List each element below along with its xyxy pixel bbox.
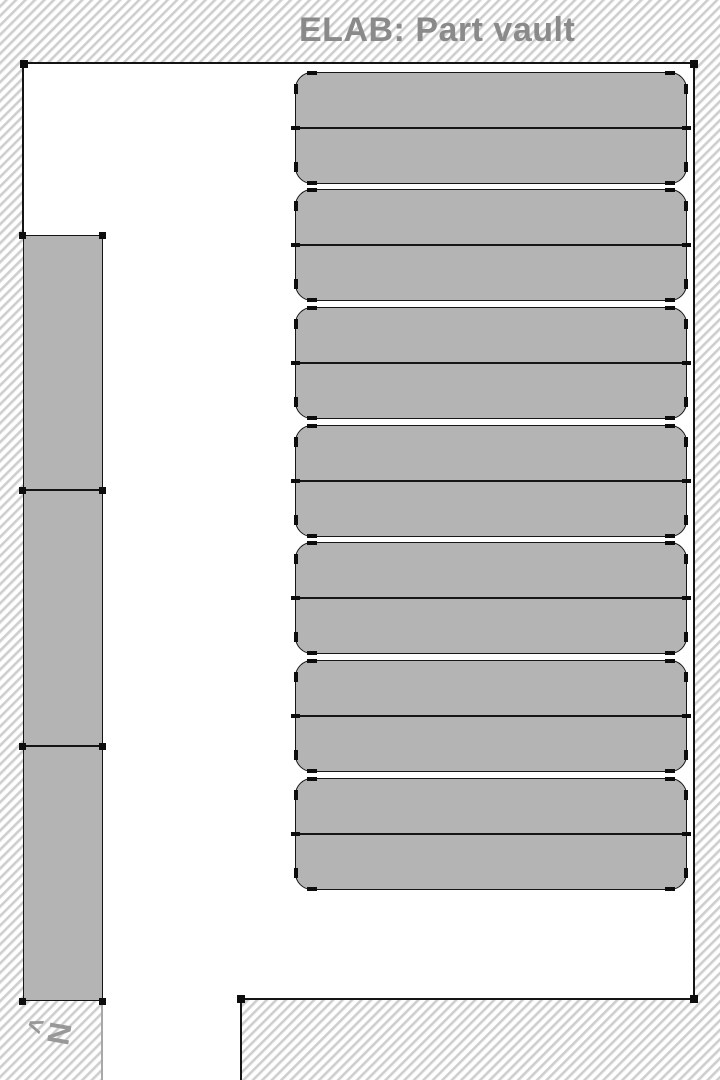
- vertex-tick: [307, 541, 317, 545]
- vertex-tick: [684, 319, 688, 329]
- wall-corner-marker: [690, 60, 698, 68]
- rack-corner-marker: [99, 232, 106, 239]
- vertex-tick: [684, 437, 688, 447]
- storage-rack-block: [23, 235, 103, 1001]
- vertex-tick: [307, 424, 317, 428]
- vertex-tick: [665, 181, 675, 185]
- vertex-tick: [682, 596, 691, 600]
- vertex-tick: [665, 651, 675, 655]
- vertex-tick: [294, 201, 298, 211]
- vertex-tick: [294, 279, 298, 289]
- vertex-tick: [665, 188, 675, 192]
- rack-corner-marker: [19, 743, 26, 750]
- vertex-tick: [307, 659, 317, 663]
- vertex-tick: [684, 868, 688, 878]
- wall-corridor-right: [240, 998, 242, 1080]
- vertex-tick: [682, 832, 691, 836]
- vertex-tick: [682, 126, 691, 130]
- vertex-tick: [307, 887, 317, 891]
- vertex-tick: [291, 361, 300, 365]
- vertex-tick: [294, 554, 298, 564]
- vertex-tick: [307, 181, 317, 185]
- vertex-tick: [682, 714, 691, 718]
- shelf-unit: [295, 542, 687, 654]
- north-compass: < N: [20, 1006, 90, 1066]
- vertex-tick: [684, 672, 688, 682]
- vertex-tick: [291, 126, 300, 130]
- wall-corner-marker: [237, 995, 245, 1003]
- vertex-tick: [291, 243, 300, 247]
- shelf-row-divider: [296, 833, 686, 835]
- wall-corner-marker: [20, 60, 28, 68]
- wall-top: [22, 62, 695, 64]
- vertex-tick: [665, 534, 675, 538]
- vertex-tick: [307, 416, 317, 420]
- vertex-tick: [665, 71, 675, 75]
- vertex-tick: [294, 319, 298, 329]
- wall-left: [22, 62, 24, 237]
- shelf-unit: [295, 72, 687, 184]
- vertex-tick: [307, 651, 317, 655]
- vertex-tick: [307, 777, 317, 781]
- vertex-tick: [665, 777, 675, 781]
- shelf-row-divider: [296, 244, 686, 246]
- vertex-tick: [294, 672, 298, 682]
- shelf-row-divider: [296, 597, 686, 599]
- vertex-tick: [307, 306, 317, 310]
- vertex-tick: [291, 832, 300, 836]
- corridor-left-edge: [101, 1001, 103, 1080]
- vertex-tick: [665, 424, 675, 428]
- rack-corner-marker: [99, 487, 106, 494]
- exit-corridor-floor: [102, 999, 240, 1080]
- vertex-tick: [684, 279, 688, 289]
- shelf-unit: [295, 425, 687, 537]
- vertex-tick: [307, 188, 317, 192]
- rack-corner-marker: [99, 743, 106, 750]
- vertex-tick: [684, 515, 688, 525]
- vertex-tick: [684, 201, 688, 211]
- rack-corner-marker: [19, 487, 26, 494]
- vertex-tick: [665, 306, 675, 310]
- map-title: ELAB: Part vault: [299, 13, 575, 47]
- vertex-tick: [682, 243, 691, 247]
- vertex-tick: [665, 659, 675, 663]
- vertex-tick: [682, 361, 691, 365]
- floorplan: < N ELAB: Part vault: [0, 0, 720, 1080]
- vertex-tick: [291, 596, 300, 600]
- shelf-row-divider: [296, 127, 686, 129]
- north-label: N: [42, 1020, 76, 1047]
- rack-divider: [23, 745, 103, 747]
- vertex-tick: [684, 790, 688, 800]
- wall-corner-marker: [690, 995, 698, 1003]
- rack-corner-marker: [19, 998, 26, 1005]
- vertex-tick: [291, 714, 300, 718]
- vertex-tick: [684, 632, 688, 642]
- vertex-tick: [684, 750, 688, 760]
- shelf-unit: [295, 189, 687, 301]
- vertex-tick: [307, 298, 317, 302]
- vertex-tick: [307, 71, 317, 75]
- vertex-tick: [291, 479, 300, 483]
- shelf-row-divider: [296, 362, 686, 364]
- vertex-tick: [684, 554, 688, 564]
- wall-bottom: [240, 998, 696, 1000]
- vertex-tick: [294, 397, 298, 407]
- rack-divider: [23, 489, 103, 491]
- vertex-tick: [294, 162, 298, 172]
- shelf-row-divider: [296, 715, 686, 717]
- vertex-tick: [294, 84, 298, 94]
- vertex-tick: [294, 632, 298, 642]
- vertex-tick: [665, 541, 675, 545]
- vertex-tick: [294, 868, 298, 878]
- shelf-row-divider: [296, 480, 686, 482]
- shelf-unit: [295, 660, 687, 772]
- shelf-unit: [295, 307, 687, 419]
- vertex-tick: [684, 84, 688, 94]
- vertex-tick: [307, 534, 317, 538]
- rack-corner-marker: [99, 998, 106, 1005]
- vertex-tick: [684, 397, 688, 407]
- vertex-tick: [294, 437, 298, 447]
- vertex-tick: [294, 790, 298, 800]
- wall-right: [693, 62, 695, 1000]
- vertex-tick: [665, 769, 675, 773]
- vertex-tick: [682, 479, 691, 483]
- vertex-tick: [665, 298, 675, 302]
- vertex-tick: [294, 750, 298, 760]
- vertex-tick: [307, 769, 317, 773]
- shelf-unit: [295, 778, 687, 890]
- vertex-tick: [294, 515, 298, 525]
- vertex-tick: [665, 887, 675, 891]
- vertex-tick: [665, 416, 675, 420]
- vertex-tick: [684, 162, 688, 172]
- rack-corner-marker: [19, 232, 26, 239]
